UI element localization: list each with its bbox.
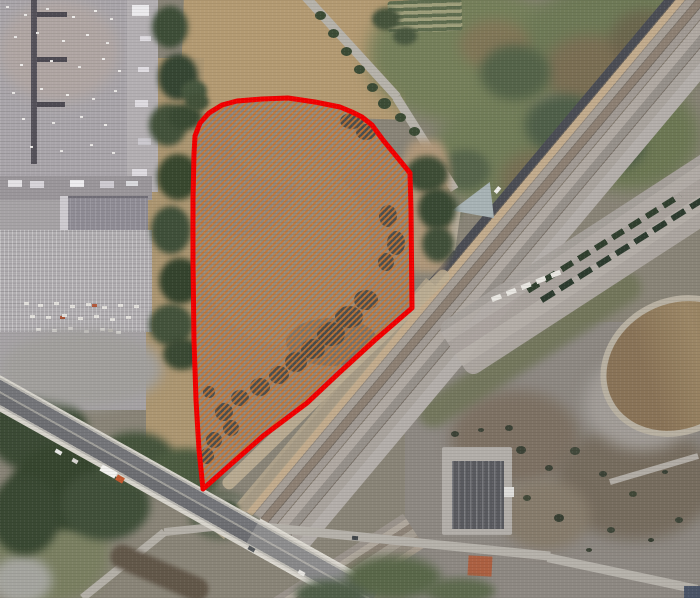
parcel-overlay-svg	[0, 0, 700, 598]
map-canvas[interactable]	[0, 0, 700, 598]
